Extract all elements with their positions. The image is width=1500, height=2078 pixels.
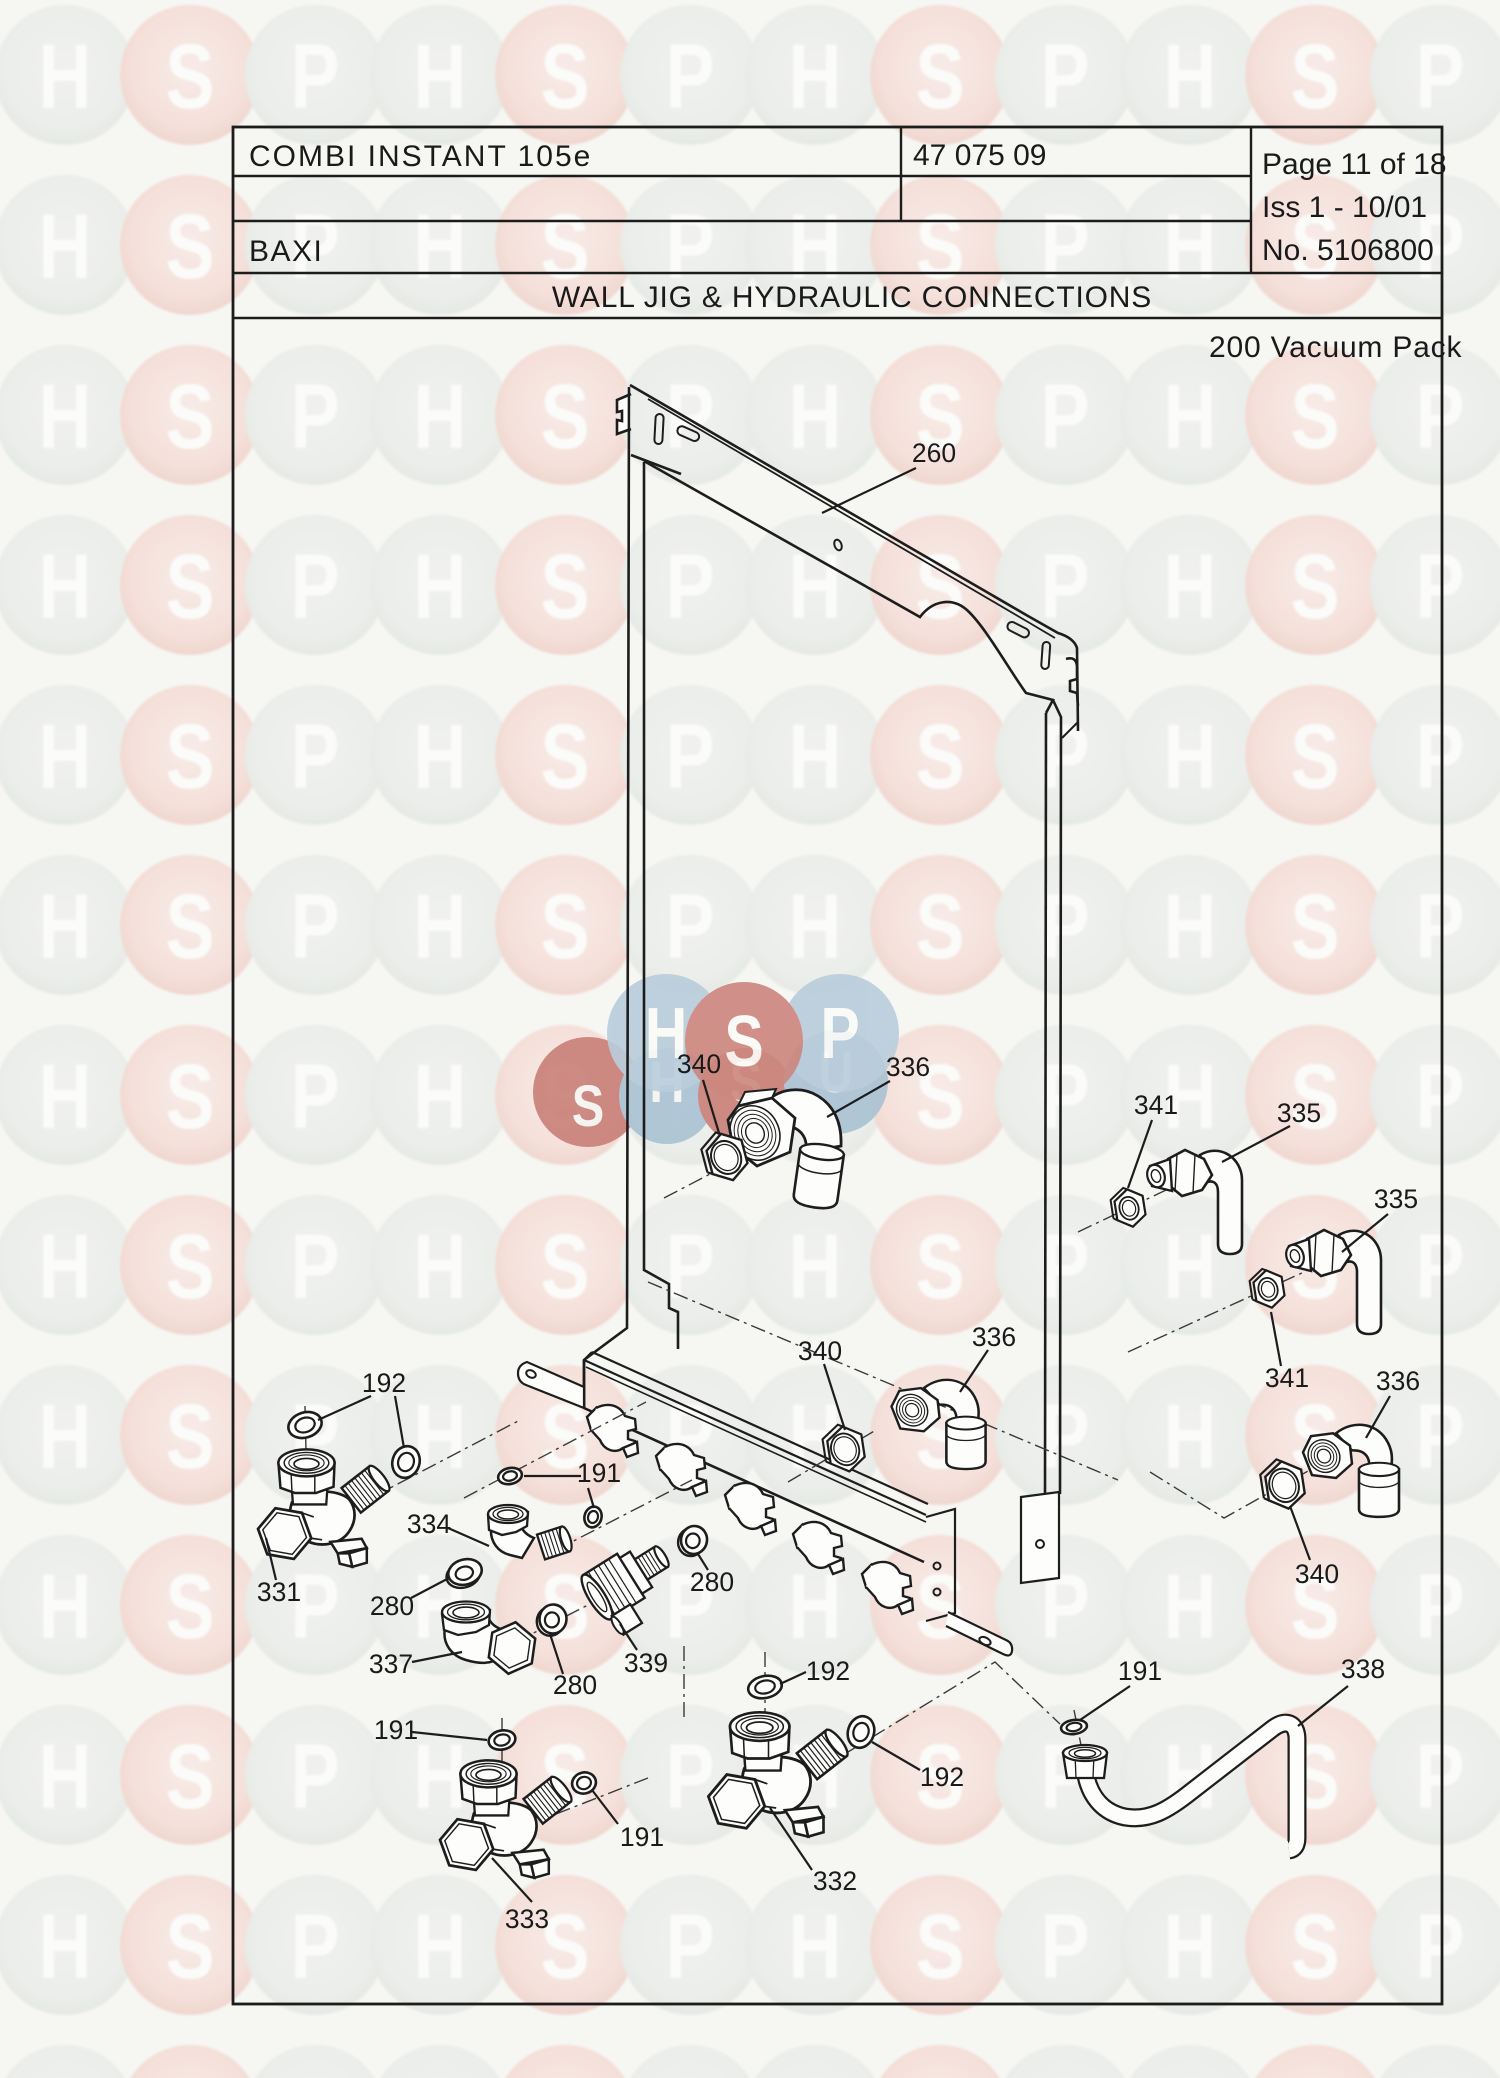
svg-text:H: H	[788, 2065, 841, 2078]
svg-text:335: 335	[1277, 1098, 1321, 1128]
svg-text:P: P	[290, 365, 339, 468]
svg-text:P: P	[665, 1895, 714, 1998]
svg-text:P: P	[290, 875, 339, 978]
svg-text:H: H	[413, 705, 466, 808]
svg-text:H: H	[788, 25, 841, 128]
svg-text:H: H	[38, 1895, 91, 1998]
svg-text:339: 339	[624, 1648, 668, 1678]
svg-text:340: 340	[1295, 1559, 1339, 1589]
svg-text:COMBI INSTANT 105e: COMBI INSTANT 105e	[249, 140, 592, 173]
svg-text:280: 280	[370, 1591, 414, 1621]
svg-text:S: S	[1290, 365, 1339, 468]
svg-text:Page 11 of 18: Page 11 of 18	[1262, 148, 1447, 181]
svg-text:P: P	[1415, 1385, 1464, 1488]
svg-text:336: 336	[1376, 1366, 1420, 1396]
svg-text:340: 340	[798, 1336, 842, 1366]
svg-text:H: H	[413, 365, 466, 468]
svg-text:H: H	[413, 1725, 466, 1828]
svg-text:H: H	[38, 1045, 91, 1148]
svg-text:P: P	[1415, 1215, 1464, 1318]
svg-text:P: P	[1040, 705, 1089, 808]
svg-text:S: S	[165, 195, 214, 298]
svg-text:H: H	[413, 1385, 466, 1488]
svg-text:H: H	[788, 535, 841, 638]
svg-text:P: P	[290, 1725, 339, 1828]
svg-text:336: 336	[886, 1052, 930, 1082]
svg-text:P: P	[1415, 535, 1464, 638]
svg-text:P: P	[1040, 2065, 1089, 2078]
svg-text:S: S	[165, 1725, 214, 1828]
svg-text:S: S	[724, 1000, 763, 1081]
svg-text:192: 192	[806, 1656, 850, 1686]
svg-text:P: P	[665, 2065, 714, 2078]
svg-text:S: S	[915, 1555, 964, 1658]
svg-text:H: H	[38, 1215, 91, 1318]
svg-text:H: H	[1163, 25, 1216, 128]
svg-text:S: S	[540, 365, 589, 468]
svg-text:S: S	[540, 1215, 589, 1318]
svg-text:333: 333	[505, 1904, 549, 1934]
svg-text:H: H	[413, 875, 466, 978]
svg-text:338: 338	[1341, 1654, 1385, 1684]
svg-text:341: 341	[1265, 1363, 1309, 1393]
svg-text:337: 337	[369, 1649, 413, 1679]
svg-text:H: H	[413, 1895, 466, 1998]
svg-text:H: H	[1163, 1385, 1216, 1488]
svg-text:H: H	[788, 875, 841, 978]
svg-text:S: S	[165, 535, 214, 638]
svg-text:S: S	[165, 875, 214, 978]
svg-text:S: S	[915, 535, 964, 638]
svg-text:No. 5106800: No. 5106800	[1262, 234, 1434, 267]
svg-text:P: P	[290, 1045, 339, 1148]
svg-text:331: 331	[257, 1577, 301, 1607]
svg-text:P: P	[665, 1725, 714, 1828]
svg-text:H: H	[413, 1045, 466, 1148]
svg-text:S: S	[165, 2065, 214, 2078]
svg-text:260: 260	[912, 438, 956, 468]
svg-text:47 075 09: 47 075 09	[913, 139, 1046, 172]
svg-text:H: H	[38, 365, 91, 468]
svg-text:H: H	[1163, 195, 1216, 298]
svg-text:S: S	[915, 1895, 964, 1998]
svg-text:P: P	[1415, 1895, 1464, 1998]
svg-text:H: H	[1163, 535, 1216, 638]
svg-text:335: 335	[1374, 1184, 1418, 1214]
svg-text:H: H	[788, 705, 841, 808]
svg-text:332: 332	[813, 1866, 857, 1896]
svg-text:P: P	[290, 535, 339, 638]
svg-text:S: S	[1290, 25, 1339, 128]
svg-text:H: H	[38, 875, 91, 978]
svg-text:S: S	[165, 705, 214, 808]
svg-text:P: P	[1415, 1555, 1464, 1658]
svg-text:S: S	[1290, 875, 1339, 978]
svg-text:H: H	[413, 2065, 466, 2078]
svg-text:S: S	[915, 875, 964, 978]
svg-text:P: P	[665, 365, 714, 468]
svg-text:P: P	[1415, 1045, 1464, 1148]
svg-text:S: S	[572, 1075, 604, 1139]
svg-text:P: P	[1415, 1725, 1464, 1828]
svg-text:S: S	[1290, 1895, 1339, 1998]
svg-text:S: S	[165, 365, 214, 468]
svg-text:S: S	[1290, 2065, 1339, 2078]
svg-text:H: H	[788, 1895, 841, 1998]
svg-text:S: S	[915, 705, 964, 808]
svg-text:S: S	[165, 25, 214, 128]
svg-text:P: P	[290, 705, 339, 808]
svg-text:S: S	[915, 1215, 964, 1318]
svg-text:H: H	[788, 1215, 841, 1318]
svg-text:280: 280	[690, 1567, 734, 1597]
svg-text:BAXI: BAXI	[249, 235, 323, 268]
svg-text:192: 192	[362, 1368, 406, 1398]
svg-text:P: P	[1415, 875, 1464, 978]
svg-text:P: P	[820, 992, 859, 1073]
svg-text:S: S	[165, 1045, 214, 1148]
svg-text:P: P	[1415, 365, 1464, 468]
svg-text:H: H	[1163, 1555, 1216, 1658]
svg-text:P: P	[1040, 1385, 1089, 1488]
svg-text:H: H	[413, 25, 466, 128]
svg-text:S: S	[165, 1215, 214, 1318]
svg-text:340: 340	[677, 1049, 721, 1079]
svg-text:P: P	[665, 1215, 714, 1318]
svg-text:H: H	[413, 195, 466, 298]
svg-text:S: S	[915, 25, 964, 128]
svg-text:S: S	[165, 1555, 214, 1658]
svg-text:P: P	[1040, 365, 1089, 468]
svg-text:280: 280	[553, 1670, 597, 1700]
svg-text:S: S	[1290, 1045, 1339, 1148]
svg-text:334: 334	[407, 1509, 451, 1539]
svg-text:P: P	[290, 1215, 339, 1318]
svg-text:200 Vacuum Pack: 200 Vacuum Pack	[1209, 331, 1462, 364]
svg-text:191: 191	[1118, 1656, 1162, 1686]
svg-text:S: S	[540, 2065, 589, 2078]
svg-text:P: P	[290, 25, 339, 128]
svg-text:P: P	[1415, 2065, 1464, 2078]
svg-text:H: H	[38, 25, 91, 128]
svg-text:P: P	[665, 25, 714, 128]
svg-text:192: 192	[920, 1762, 964, 1792]
svg-text:S: S	[915, 2065, 964, 2078]
svg-text:336: 336	[972, 1322, 1016, 1352]
svg-text:P: P	[1415, 25, 1464, 128]
svg-text:S: S	[540, 535, 589, 638]
svg-text:P: P	[1415, 705, 1464, 808]
svg-text:191: 191	[577, 1458, 621, 1488]
svg-text:P: P	[665, 705, 714, 808]
svg-text:H: H	[1163, 1895, 1216, 1998]
svg-text:H: H	[413, 1215, 466, 1318]
svg-text:P: P	[1040, 535, 1089, 638]
svg-text:H: H	[38, 195, 91, 298]
svg-text:P: P	[665, 875, 714, 978]
svg-text:WALL JIG & HYDRAULIC CONNECTIO: WALL JIG & HYDRAULIC CONNECTIONS	[552, 281, 1152, 314]
svg-text:H: H	[1163, 705, 1216, 808]
svg-text:H: H	[38, 1555, 91, 1658]
svg-text:S: S	[165, 1385, 214, 1488]
svg-text:H: H	[413, 535, 466, 638]
svg-text:S: S	[1290, 705, 1339, 808]
svg-text:H: H	[38, 535, 91, 638]
svg-text:P: P	[290, 2065, 339, 2078]
svg-text:H: H	[38, 1385, 91, 1488]
svg-text:P: P	[1040, 875, 1089, 978]
svg-text:191: 191	[374, 1715, 418, 1745]
svg-text:191: 191	[620, 1822, 664, 1852]
svg-text:H: H	[38, 1725, 91, 1828]
svg-text:S: S	[540, 705, 589, 808]
svg-text:Iss 1 - 10/01: Iss 1 - 10/01	[1262, 191, 1427, 224]
svg-text:S: S	[1290, 535, 1339, 638]
svg-text:341: 341	[1134, 1090, 1178, 1120]
svg-text:P: P	[1040, 1895, 1089, 1998]
svg-text:P: P	[290, 1895, 339, 1998]
svg-text:H: H	[1163, 1215, 1216, 1318]
svg-text:H: H	[38, 2065, 91, 2078]
svg-text:S: S	[165, 1895, 214, 1998]
svg-text:P: P	[1040, 25, 1089, 128]
svg-text:H: H	[788, 365, 841, 468]
svg-text:H: H	[38, 705, 91, 808]
svg-text:S: S	[540, 875, 589, 978]
svg-text:S: S	[540, 25, 589, 128]
svg-text:P: P	[665, 535, 714, 638]
svg-text:P: P	[1040, 1045, 1089, 1148]
svg-text:H: H	[1163, 875, 1216, 978]
svg-text:H: H	[1163, 2065, 1216, 2078]
svg-text:H: H	[1163, 365, 1216, 468]
